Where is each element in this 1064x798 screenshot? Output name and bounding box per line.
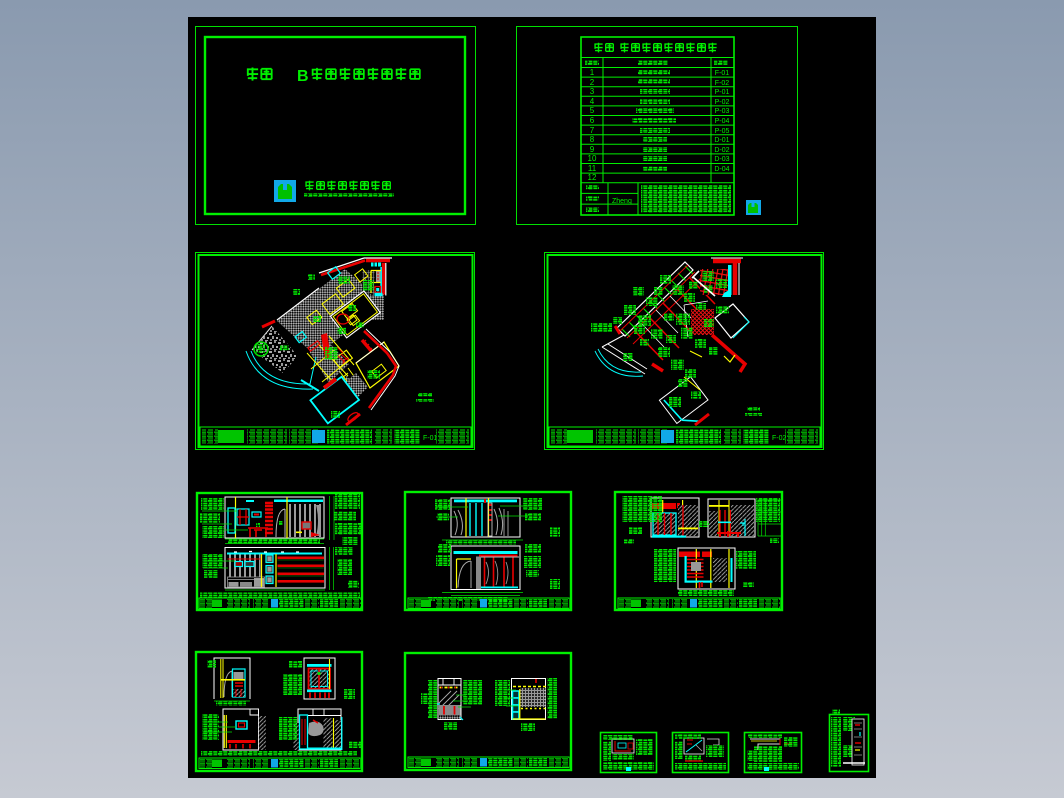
svg-text:F-02: F-02	[772, 435, 787, 442]
svg-text:10: 10	[588, 154, 597, 163]
svg-text:P-02: P-02	[715, 99, 730, 106]
svg-text:D-03: D-03	[714, 156, 729, 163]
svg-text:9: 9	[590, 145, 595, 154]
svg-text:7: 7	[590, 126, 595, 135]
svg-text:F-01: F-01	[423, 435, 438, 442]
svg-text:Zheng: Zheng	[612, 198, 632, 205]
svg-text:D-02: D-02	[714, 147, 729, 154]
svg-text:5: 5	[590, 106, 595, 115]
svg-text:D-04: D-04	[714, 166, 729, 173]
svg-text:3: 3	[590, 87, 595, 96]
svg-text:P-03: P-03	[715, 108, 730, 115]
svg-text:P-04: P-04	[715, 118, 730, 125]
svg-text:F-02: F-02	[715, 80, 730, 87]
svg-text:11: 11	[588, 164, 597, 173]
svg-text:B: B	[297, 68, 309, 85]
svg-text:P-05: P-05	[715, 128, 730, 135]
svg-text:8: 8	[590, 135, 595, 144]
svg-text:12: 12	[588, 173, 597, 182]
svg-text:4: 4	[590, 97, 595, 106]
svg-text:P-01: P-01	[715, 89, 730, 96]
svg-text:2: 2	[590, 78, 595, 87]
svg-text:F-01: F-01	[715, 70, 730, 77]
svg-text:1: 1	[590, 68, 595, 77]
svg-text:D-01: D-01	[714, 137, 729, 144]
svg-text:6: 6	[590, 116, 595, 125]
